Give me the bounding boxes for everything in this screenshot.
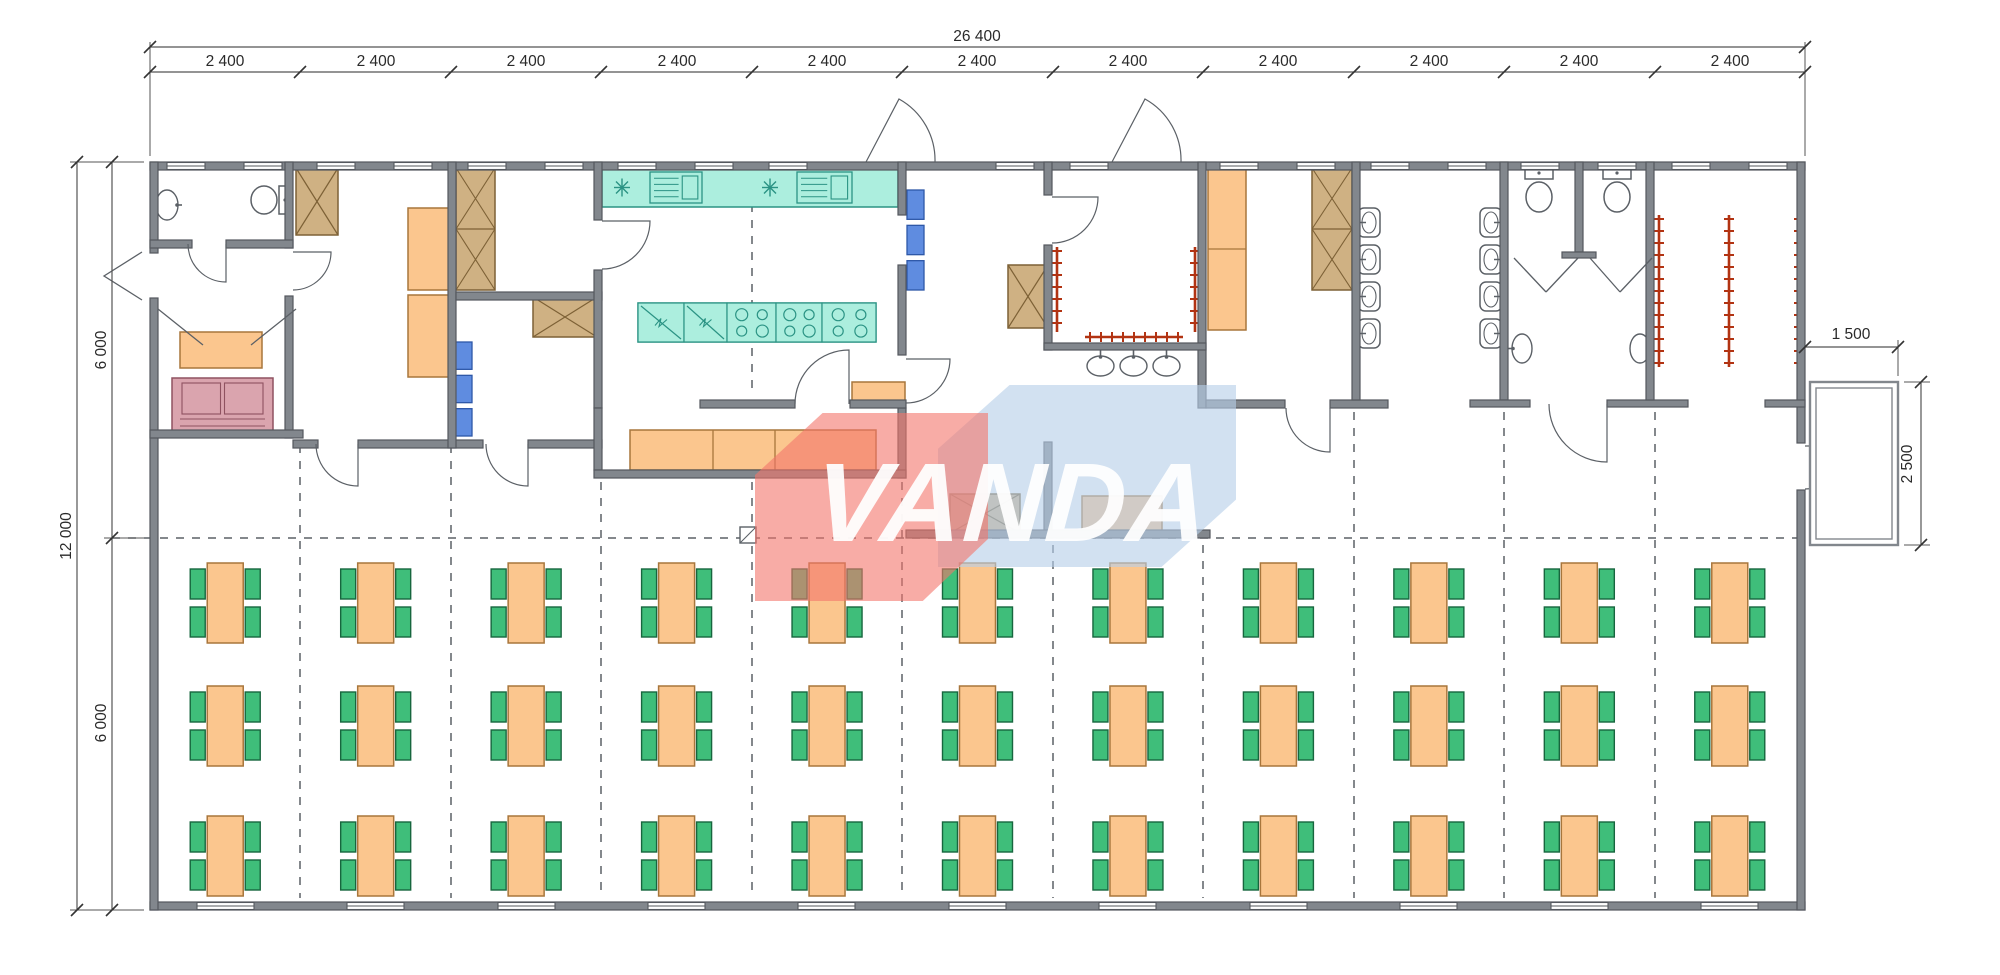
burner <box>804 310 814 320</box>
dining-chair <box>1695 692 1710 722</box>
storage-box-blue <box>907 190 924 219</box>
dining-chair <box>1093 569 1108 599</box>
dining-chair <box>1750 860 1765 890</box>
dining-chair <box>1298 607 1313 637</box>
wall <box>1797 490 1805 910</box>
dining-table <box>508 816 544 896</box>
burner <box>833 326 843 336</box>
dining-chair <box>546 822 561 852</box>
dining-chair <box>847 730 862 760</box>
dining-chair <box>1599 860 1614 890</box>
wall <box>456 292 602 300</box>
dining-chair <box>1243 822 1258 852</box>
dimension-label: 2 400 <box>658 53 697 70</box>
wall <box>594 408 602 470</box>
dining-chair <box>190 730 205 760</box>
dining-table <box>1110 686 1146 766</box>
dining-chair <box>1695 860 1710 890</box>
dining-chair <box>792 860 807 890</box>
dining-table <box>1110 563 1146 643</box>
storage-box-blue <box>907 225 924 254</box>
dining-chair <box>190 607 205 637</box>
wall <box>1575 162 1583 252</box>
dining-chair <box>1298 822 1313 852</box>
tap <box>1099 355 1103 359</box>
dining-chair <box>642 822 657 852</box>
dining-table <box>1260 816 1296 896</box>
dimension-label: 2 400 <box>1711 53 1750 70</box>
wall <box>700 400 795 408</box>
dining-chair <box>1243 607 1258 637</box>
dining-chair <box>1298 860 1313 890</box>
wall <box>358 440 483 448</box>
dining-chair <box>1695 730 1710 760</box>
dining-chair <box>1148 730 1163 760</box>
dining-table <box>1712 816 1748 896</box>
dining-table <box>358 563 394 643</box>
dining-table <box>1561 686 1597 766</box>
dimension-label: 2 400 <box>507 53 546 70</box>
dimension-label: 2 400 <box>357 53 396 70</box>
dining-chair <box>1599 822 1614 852</box>
dining-chair <box>642 569 657 599</box>
dining-chair <box>396 860 411 890</box>
dining-chair <box>792 692 807 722</box>
dining-chair <box>642 730 657 760</box>
dining-chair <box>997 822 1012 852</box>
dining-table <box>959 563 995 643</box>
dining-chair <box>997 860 1012 890</box>
dining-chair <box>1394 569 1409 599</box>
dining-chair <box>1394 730 1409 760</box>
floor-plan-drawing: 26 4002 4002 4002 4002 4002 4002 4002 40… <box>0 0 2000 975</box>
dining-chair <box>1093 692 1108 722</box>
dining-table <box>659 563 695 643</box>
tap <box>1165 355 1169 359</box>
tap <box>175 203 179 207</box>
dining-table <box>1411 563 1447 643</box>
wall <box>1470 400 1530 407</box>
wall <box>285 162 293 248</box>
dining-chair <box>792 569 807 599</box>
dining-chair <box>396 730 411 760</box>
dining-chair <box>190 569 205 599</box>
door-leaf <box>104 252 142 300</box>
dining-chair <box>942 607 957 637</box>
dining-chair <box>1544 822 1559 852</box>
dining-chair <box>697 692 712 722</box>
dining-chair <box>1093 730 1108 760</box>
stove-unit <box>727 303 776 342</box>
dining-chair <box>1544 607 1559 637</box>
dining-chair <box>1599 569 1614 599</box>
dining-chair <box>546 730 561 760</box>
door-swing <box>866 99 935 162</box>
sink-basin <box>831 176 848 199</box>
dining-chair <box>847 569 862 599</box>
washbasin <box>1153 356 1180 376</box>
burner <box>756 325 768 337</box>
dining-table <box>659 816 695 896</box>
dining-table <box>809 686 845 766</box>
dining-chair <box>1695 822 1710 852</box>
dining-chair <box>642 607 657 637</box>
dining-chair <box>1394 607 1409 637</box>
burner <box>736 309 748 321</box>
wall <box>150 162 158 253</box>
dining-chair <box>697 860 712 890</box>
dining-chair <box>1449 607 1464 637</box>
dimension-label: 6 000 <box>93 330 110 369</box>
storage-box-blue <box>907 261 924 290</box>
dining-chair <box>245 692 260 722</box>
dining-table <box>959 816 995 896</box>
wall <box>850 400 906 408</box>
dimension-label: 1 500 <box>1832 326 1871 343</box>
washbasin <box>156 190 178 220</box>
dining-chair <box>491 607 506 637</box>
dining-chair <box>1449 860 1464 890</box>
dining-chair <box>190 692 205 722</box>
dining-chair <box>341 730 356 760</box>
dining-chair <box>1243 730 1258 760</box>
dining-chair <box>1148 569 1163 599</box>
dining-chair <box>341 692 356 722</box>
dining-chair <box>942 860 957 890</box>
dining-chair <box>1298 569 1313 599</box>
dining-chair <box>546 569 561 599</box>
dining-chair <box>1093 607 1108 637</box>
dining-chair <box>942 730 957 760</box>
dining-chair <box>1243 860 1258 890</box>
wall <box>1352 162 1360 400</box>
dining-chair <box>642 860 657 890</box>
washbasin <box>1120 356 1147 376</box>
dining-chair <box>491 822 506 852</box>
dining-table <box>1561 816 1597 896</box>
flush <box>1615 171 1618 174</box>
cabinet-orange <box>408 295 450 377</box>
dining-chair <box>1449 730 1464 760</box>
tap <box>1511 347 1515 351</box>
wall <box>1044 245 1052 350</box>
dining-table <box>508 686 544 766</box>
wall <box>293 440 318 448</box>
dining-chair <box>997 569 1012 599</box>
dimension-label: 12 000 <box>58 512 75 560</box>
burner <box>737 326 747 336</box>
wall <box>528 440 602 448</box>
dining-table <box>358 686 394 766</box>
wall <box>226 240 293 248</box>
stove-unit <box>776 303 822 342</box>
wall <box>594 162 602 220</box>
dining-chair <box>1449 692 1464 722</box>
dining-table <box>508 563 544 643</box>
burner <box>757 310 767 320</box>
dining-chair <box>341 860 356 890</box>
dining-chair <box>491 860 506 890</box>
dimension-label: 2 500 <box>1899 444 1916 483</box>
dining-chair <box>491 730 506 760</box>
dimension-label: 26 400 <box>953 28 1001 45</box>
wall <box>594 270 602 408</box>
dining-chair <box>1148 692 1163 722</box>
wall <box>1562 252 1596 258</box>
dimension-label: 2 400 <box>808 53 847 70</box>
dining-table <box>809 563 845 643</box>
dining-chair <box>341 607 356 637</box>
wall <box>1044 343 1206 350</box>
dining-chair <box>1695 569 1710 599</box>
dining-chair <box>1544 730 1559 760</box>
toilet-bowl <box>1526 182 1552 212</box>
dining-chair <box>697 730 712 760</box>
dining-chair <box>245 730 260 760</box>
dimension-label: 6 000 <box>93 703 110 742</box>
dimension-label: 2 400 <box>1109 53 1148 70</box>
dining-chair <box>1599 730 1614 760</box>
dining-chair <box>1449 569 1464 599</box>
dining-chair <box>1599 607 1614 637</box>
dining-chair <box>245 569 260 599</box>
dining-table <box>358 816 394 896</box>
dining-chair <box>1695 607 1710 637</box>
wall <box>1206 400 1285 408</box>
dining-table <box>207 686 243 766</box>
dining-chair <box>1148 860 1163 890</box>
wall <box>1330 400 1388 408</box>
dining-chair <box>997 730 1012 760</box>
cabinet-orange <box>408 208 450 290</box>
wall <box>150 240 192 248</box>
dining-chair <box>1544 692 1559 722</box>
dining-chair <box>341 569 356 599</box>
dining-table <box>207 563 243 643</box>
dining-table <box>207 816 243 896</box>
dimension-label: 2 400 <box>1410 53 1449 70</box>
dining-chair <box>1750 822 1765 852</box>
toilet-bowl <box>1604 182 1630 212</box>
wall <box>594 470 906 478</box>
stove-unit <box>822 303 876 342</box>
wall <box>1500 162 1508 400</box>
dining-chair <box>546 692 561 722</box>
dining-chair <box>245 860 260 890</box>
dining-chair <box>792 730 807 760</box>
dining-chair <box>1750 569 1765 599</box>
dining-chair <box>942 822 957 852</box>
serving-counter <box>630 430 876 470</box>
washbasin <box>1512 334 1532 363</box>
dining-chair <box>1750 730 1765 760</box>
dining-chair <box>847 860 862 890</box>
burner <box>856 310 866 320</box>
dining-chair <box>546 860 561 890</box>
dining-table <box>1411 816 1447 896</box>
dining-table <box>809 816 845 896</box>
dining-chair <box>1544 569 1559 599</box>
dining-chair <box>396 607 411 637</box>
wall <box>448 162 456 448</box>
dining-chair <box>546 607 561 637</box>
wall <box>1646 162 1654 400</box>
wall <box>1044 162 1052 195</box>
dining-chair <box>1750 692 1765 722</box>
dining-chair <box>847 692 862 722</box>
wall <box>150 430 303 438</box>
dining-chair <box>396 569 411 599</box>
wall <box>898 162 906 215</box>
tap <box>1132 355 1136 359</box>
dimension-label: 2 400 <box>958 53 997 70</box>
dining-chair <box>1394 860 1409 890</box>
dining-chair <box>1148 607 1163 637</box>
dining-table <box>1260 686 1296 766</box>
cabinet-orange <box>1082 496 1162 531</box>
dining-chair <box>1599 692 1614 722</box>
dining-chair <box>1298 692 1313 722</box>
burner <box>832 309 844 321</box>
dining-table <box>1260 563 1296 643</box>
washbasin <box>1087 356 1114 376</box>
dining-chair <box>697 822 712 852</box>
wall <box>1765 400 1805 407</box>
dining-chair <box>1394 822 1409 852</box>
dining-chair <box>190 822 205 852</box>
dining-chair <box>642 692 657 722</box>
dining-chair <box>1544 860 1559 890</box>
dining-chair <box>792 607 807 637</box>
dining-chair <box>341 822 356 852</box>
dining-chair <box>697 607 712 637</box>
dining-chair <box>396 692 411 722</box>
dining-chair <box>491 692 506 722</box>
wall <box>898 265 906 355</box>
wall <box>1198 162 1206 408</box>
dining-table <box>1110 816 1146 896</box>
dining-chair <box>1243 692 1258 722</box>
cabinet-orange <box>180 332 262 368</box>
dimension-label: 2 400 <box>206 53 245 70</box>
sofa-cushion <box>225 383 264 414</box>
dining-chair <box>847 822 862 852</box>
cabinet-orange <box>852 382 905 402</box>
dining-chair <box>1243 569 1258 599</box>
dining-chair <box>245 607 260 637</box>
dining-chair <box>1093 860 1108 890</box>
dining-chair <box>997 692 1012 722</box>
wall <box>906 530 1210 538</box>
dining-chair <box>697 569 712 599</box>
dining-table <box>1712 563 1748 643</box>
dining-chair <box>1093 822 1108 852</box>
flush <box>1537 171 1540 174</box>
toilet-bowl <box>251 186 277 214</box>
dining-chair <box>245 822 260 852</box>
dining-chair <box>942 692 957 722</box>
dining-chair <box>491 569 506 599</box>
burner <box>785 326 795 336</box>
dining-table <box>959 686 995 766</box>
dining-table <box>1561 563 1597 643</box>
dining-chair <box>792 822 807 852</box>
floor-plan-canvas: 26 4002 4002 4002 4002 4002 4002 4002 40… <box>0 0 2000 975</box>
dimension-label: 2 400 <box>1259 53 1298 70</box>
burner <box>803 325 815 337</box>
wall <box>1044 442 1052 538</box>
porch-outer <box>1810 382 1898 545</box>
wall <box>150 298 158 910</box>
kitchen-counter <box>602 168 898 207</box>
dining-chair <box>1148 822 1163 852</box>
dining-chair <box>1750 607 1765 637</box>
dining-chair <box>190 860 205 890</box>
dining-chair <box>1298 730 1313 760</box>
wall <box>1607 400 1688 407</box>
dining-chair <box>396 822 411 852</box>
burner <box>855 325 867 337</box>
burner <box>784 309 796 321</box>
sink-basin <box>682 176 698 199</box>
dining-table <box>1712 686 1748 766</box>
dining-chair <box>1394 692 1409 722</box>
dining-table <box>659 686 695 766</box>
dining-chair <box>1449 822 1464 852</box>
sofa-cushion <box>182 383 221 414</box>
dimension-label: 2 400 <box>1560 53 1599 70</box>
dining-chair <box>997 607 1012 637</box>
dining-chair <box>847 607 862 637</box>
wall <box>898 408 906 478</box>
dining-chair <box>942 569 957 599</box>
dining-table <box>1411 686 1447 766</box>
door-swing <box>1112 99 1181 162</box>
